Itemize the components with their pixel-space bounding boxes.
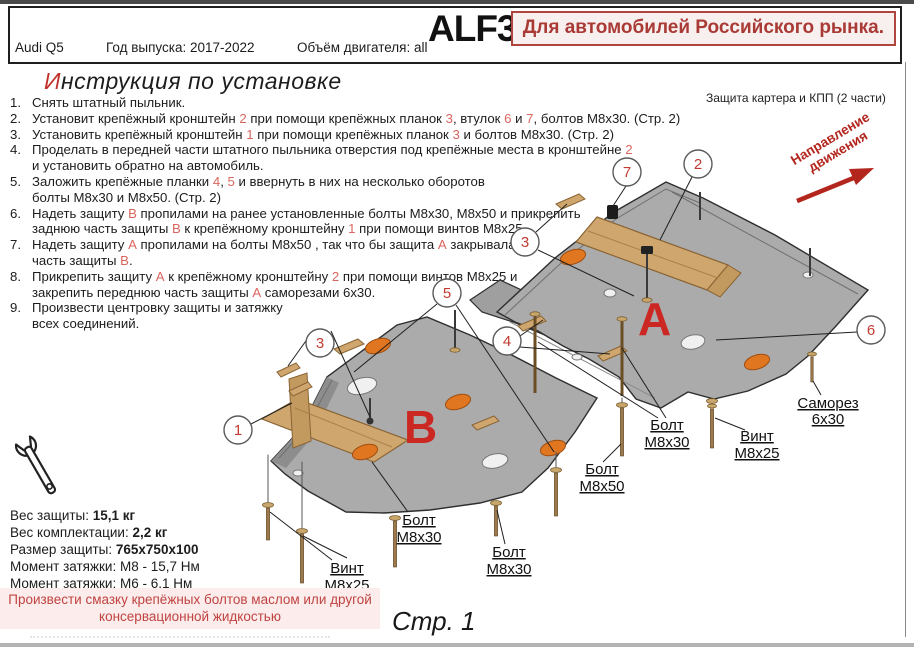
callout-5: 5 [433,279,461,307]
svg-text:3: 3 [521,234,529,251]
svg-text:М8х25: М8х25 [734,445,779,462]
svg-text:М8х50: М8х50 [579,478,624,495]
callout-2: 2 [684,150,712,178]
faint-watermark [30,636,330,638]
svg-text:Винт: Винт [740,428,774,445]
instruction-sheet: ALF3044st Для автомобилей Российского ры… [0,0,914,651]
svg-text:4: 4 [503,333,511,350]
page-right-edge [905,62,906,637]
svg-text:Саморез: Саморез [797,395,858,412]
svg-text:7: 7 [623,164,631,181]
svg-text:Болт: Болт [402,512,436,529]
svg-text:3: 3 [316,335,324,352]
svg-text:М8х30: М8х30 [644,434,689,451]
svg-text:М8х30: М8х30 [486,561,531,578]
svg-text:Винт: Винт [330,560,364,577]
callout-3-left: 3 [306,329,334,357]
spec-kit-weight: Вес комплектации: 2,2 кг [10,524,200,541]
svg-text:М8х30: М8х30 [396,529,441,546]
svg-text:6: 6 [867,322,875,339]
callout-7: 7 [613,158,641,186]
plate-a-letter: А [638,293,671,345]
svg-text:Болт: Болт [492,544,526,561]
svg-text:Болт: Болт [585,461,619,478]
callout-3-right: 3 [511,228,539,256]
spec-size: Размер защиты: 765х750х100 [10,541,200,558]
rubber-bushing [607,205,618,219]
wrench-icon [14,436,61,498]
page-number: Стр. 1 [392,606,476,637]
spec-block: Вес защиты: 15,1 кг Вес комплектации: 2,… [10,507,200,592]
svg-text:5: 5 [443,285,451,302]
spec-weight: Вес защиты: 15,1 кг [10,507,200,524]
svg-text:2: 2 [694,156,702,173]
svg-text:Болт: Болт [650,417,684,434]
direction-arrow-icon [797,168,874,201]
window-bottom-edge [0,643,914,647]
spec-torque-m8: Момент затяжки: М8 - 15,7 Нм [10,558,200,575]
callout-1: 1 [224,416,252,444]
callout-6: 6 [857,316,885,344]
plate-b-letter: В [404,401,437,453]
svg-text:6х30: 6х30 [812,411,845,428]
callout-4: 4 [493,327,521,355]
lubrication-warning: Произвести смазку крепёжных болтов масло… [0,588,380,629]
svg-text:1: 1 [234,422,242,439]
